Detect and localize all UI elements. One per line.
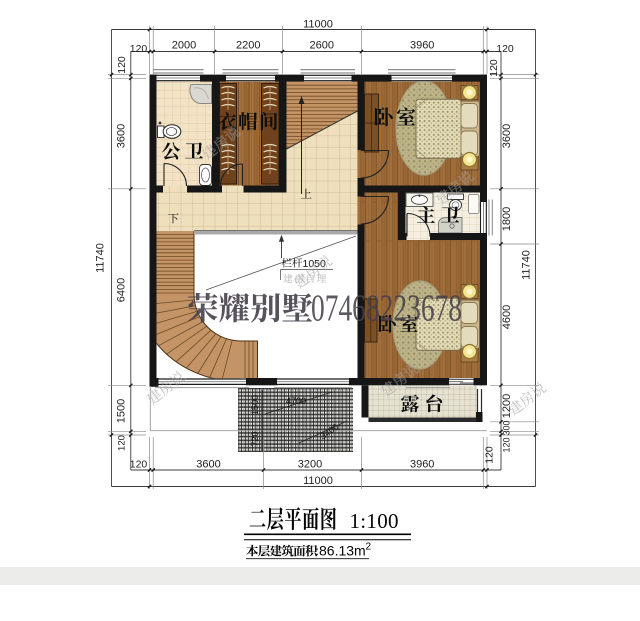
svg-text:3600: 3600 (116, 124, 128, 148)
svg-text:11000: 11000 (303, 475, 333, 487)
svg-text:720: 720 (250, 431, 260, 446)
svg-text:4600: 4600 (501, 305, 513, 329)
svg-text:2600: 2600 (310, 40, 334, 52)
svg-text:120: 120 (130, 459, 148, 471)
svg-text:120: 120 (488, 59, 500, 77)
svg-text:300: 300 (502, 420, 512, 435)
svg-text:1500: 1500 (250, 395, 260, 415)
svg-text:1200: 1200 (501, 394, 513, 418)
svg-text:120: 120 (116, 56, 128, 74)
svg-text:07468223678: 07468223678 (311, 288, 462, 330)
svg-text:1:100: 1:100 (350, 509, 399, 533)
svg-text:3960: 3960 (410, 40, 434, 52)
svg-text:11740: 11740 (95, 243, 107, 273)
svg-text:120: 120 (502, 437, 512, 452)
svg-text:120: 120 (484, 446, 496, 464)
svg-text:3600: 3600 (501, 124, 513, 148)
svg-text:6400: 6400 (116, 278, 128, 302)
svg-text:1800: 1800 (501, 207, 513, 231)
svg-text:120: 120 (130, 43, 148, 55)
svg-text:1500: 1500 (116, 399, 128, 423)
svg-text:2200: 2200 (236, 40, 260, 52)
svg-text:2000: 2000 (172, 40, 196, 52)
svg-text:11000: 11000 (303, 19, 333, 31)
svg-text:120: 120 (117, 435, 128, 451)
svg-text:3600: 3600 (196, 459, 220, 471)
svg-text:86.13m: 86.13m (319, 543, 366, 559)
svg-text:4700: 4700 (286, 396, 306, 406)
svg-text:3200: 3200 (298, 459, 322, 471)
svg-text:120: 120 (496, 43, 514, 55)
svg-text:3960: 3960 (410, 459, 434, 471)
svg-text:11740: 11740 (521, 250, 533, 280)
svg-text:2: 2 (366, 542, 372, 553)
